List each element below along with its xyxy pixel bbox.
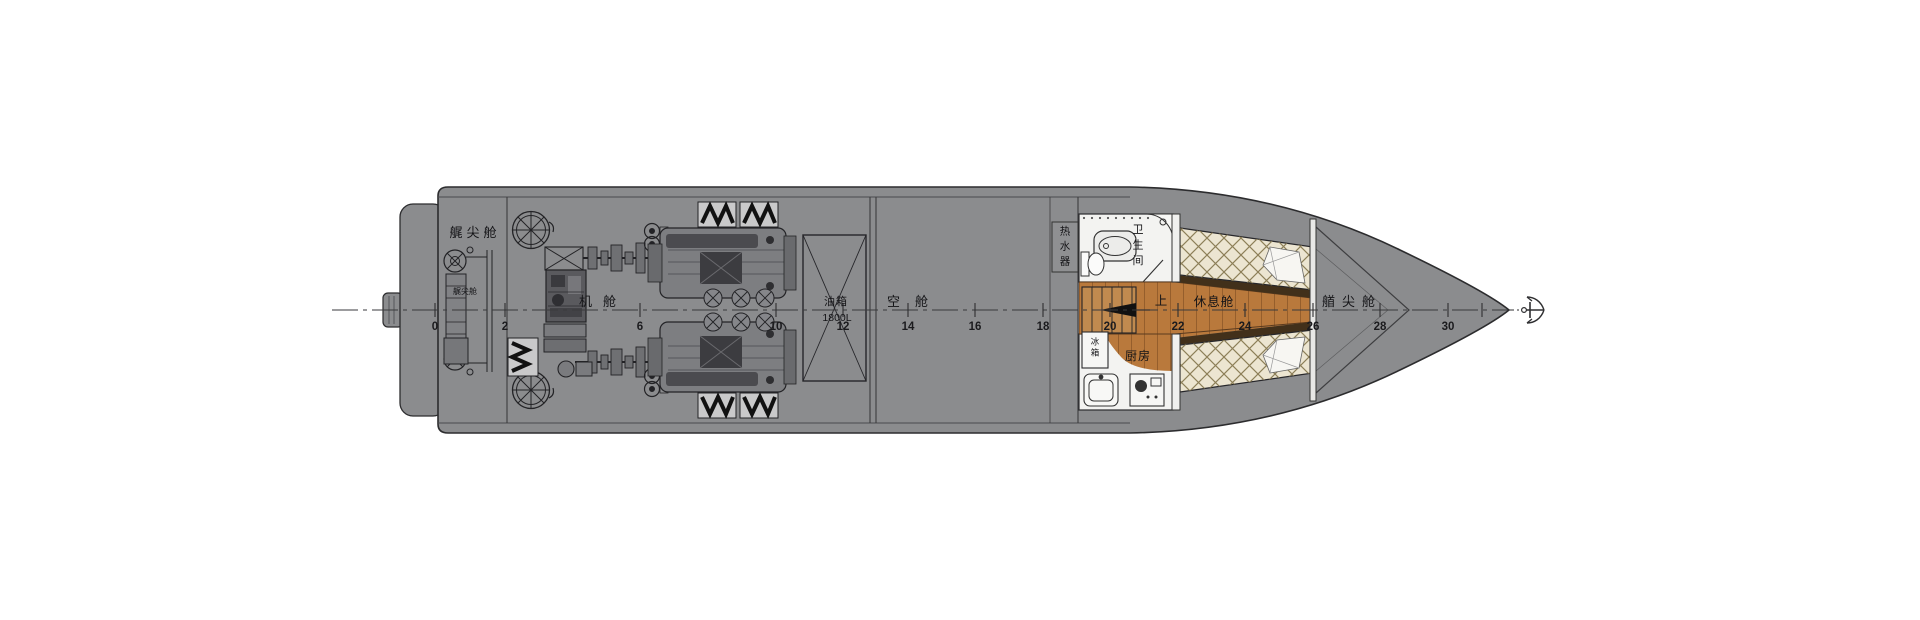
void-space-label: 空舱 [887,294,943,309]
frame-number: 28 [1374,321,1387,333]
fridge-label: 冰箱 [1091,337,1100,358]
rest-cabin-label: 休息舱 [1194,294,1235,309]
frame-number: 0 [432,321,438,333]
frame-number: 2 [502,321,508,333]
frame-number: 18 [1037,321,1050,333]
plan-canvas: 0261012141618202224262830 艉尖舱艉尖舱机舱油箱1800… [0,0,1920,620]
frame-number: 16 [969,321,982,333]
fuel-tank [803,235,866,381]
stern-peak-small-label: 艉尖舱 [453,286,477,296]
toilet [1081,252,1104,276]
frame-number: 6 [637,321,643,333]
stern-striped-box [508,338,538,376]
water-heater-label: 热水器 [1060,225,1071,268]
fuel-tank-label: 油箱 [824,294,848,308]
frame-number: 30 [1442,321,1455,333]
fuel-capacity-label: 1800L [822,312,851,324]
frame-number: 10 [770,321,783,333]
frame-number: 20 [1104,321,1117,333]
frame-number: 26 [1307,321,1320,333]
bathroom-label: 卫生间 [1133,224,1144,267]
anchor-icon [1509,297,1544,323]
kitchen-label: 厨房 [1125,348,1151,363]
stove [1130,374,1164,406]
stairs-up-label: 上 [1155,294,1168,308]
frame-number: 22 [1172,321,1185,333]
boat-deck-plan: 0261012141618202224262830 艉尖舱艉尖舱机舱油箱1800… [0,0,1920,620]
cross-box [545,247,583,270]
stern-peak-cabin-label: 艉尖舱 [449,225,500,240]
frame-number: 24 [1239,321,1252,333]
engine-room-label: 机舱 [579,294,627,309]
bow-peak-cabin-label: 艏尖舱 [1322,294,1382,309]
frame-number: 14 [902,321,915,333]
kitchen-sink [1084,374,1118,406]
